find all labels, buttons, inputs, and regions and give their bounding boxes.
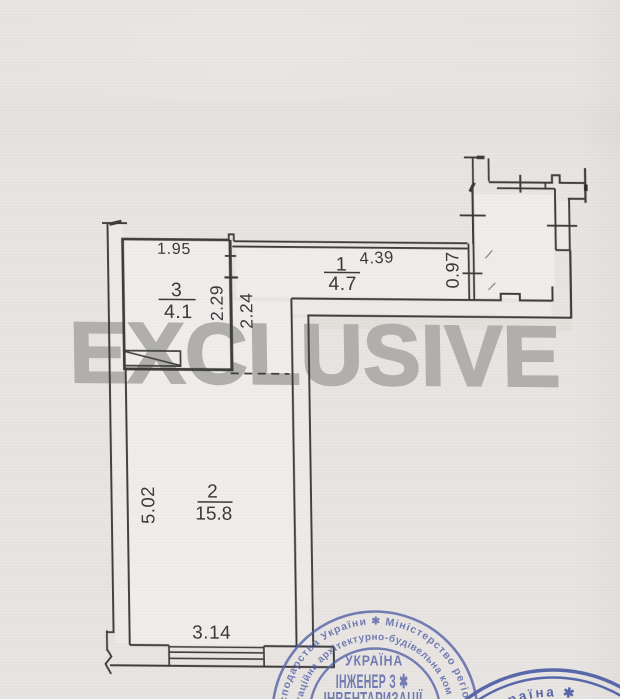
svg-text:4.7: 4.7 (328, 273, 357, 295)
svg-text:0.97: 0.97 (442, 251, 463, 288)
svg-text:4.39: 4.39 (359, 248, 395, 267)
svg-text:Україна ✱: Україна ✱ (486, 684, 578, 699)
svg-text:1.95: 1.95 (157, 241, 191, 258)
svg-text:2.24: 2.24 (236, 293, 257, 329)
svg-text:2.29: 2.29 (206, 285, 227, 321)
svg-text:5.02: 5.02 (137, 486, 159, 524)
svg-text:15.8: 15.8 (195, 504, 232, 525)
svg-text:4.1: 4.1 (164, 301, 193, 323)
svg-text:ІНВЕНТАРИЗАЦІЇ: ІНВЕНТАРИЗАЦІЇ (324, 689, 423, 699)
svg-text:3: 3 (171, 279, 182, 301)
svg-text:EXCLUSIVE: EXCLUSIVE (69, 305, 561, 405)
svg-text:2: 2 (207, 482, 218, 503)
svg-text:3.14: 3.14 (192, 622, 231, 643)
svg-text:УКРАЇНА: УКРАЇНА (345, 651, 403, 668)
